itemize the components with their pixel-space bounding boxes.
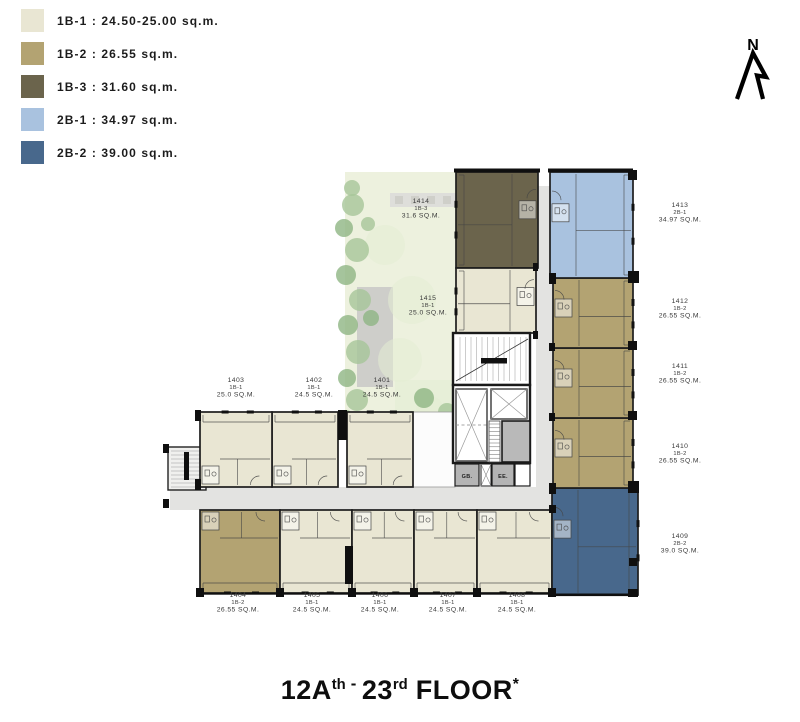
tree-icon [342,194,364,216]
unit-1414 [455,172,539,268]
tree-icon [346,340,370,364]
tree-icon [345,238,369,262]
legend-label: 1B-3 : 31.60 sq.m. [57,80,178,94]
stair-landing-bar [481,358,507,364]
unit-area: 24.5 SQ.M. [429,607,467,614]
unit-type: 1B-2 [673,306,686,312]
wall-tick [184,452,189,480]
wall-tick [628,411,637,420]
wall-tick [628,341,637,350]
legend-row-1b-1: 1B-1 : 24.50-25.00 sq.m. [21,4,219,37]
unit-label-1404: 14041B-226.55 SQ.M. [217,592,260,614]
legend-row-1b-2: 1B-2 : 26.55 sq.m. [21,37,219,70]
wall-tick [195,479,201,490]
wall-tick [533,331,538,339]
tree-icon [363,310,379,326]
unit-label-1405: 14051B-124.5 SQ.M. [293,592,331,614]
unit-number: 1401 [374,377,391,384]
unit-1409 [552,488,640,595]
floor-title-part1: 12A [281,675,332,705]
unit-label-1406: 14061B-124.5 SQ.M. [361,592,399,614]
unit-number: 1411 [672,363,688,370]
unit-label-1408: 14081B-124.5 SQ.M. [498,592,536,614]
unit-number: 1408 [509,592,526,599]
unit-number: 1407 [440,592,457,599]
legend-label: 2B-1 : 34.97 sq.m. [57,113,178,127]
unit-1403 [200,411,272,488]
ee-label: EE. [498,474,508,480]
unit-area: 24.5 SQ.M. [498,607,536,614]
building-core: GB. EE. [453,333,530,486]
unit-label-1403: 14031B-125.0 SQ.M. [217,377,255,399]
unit-label-1411: 14111B-226.55 SQ.M. [659,363,702,385]
unit-area: 25.0 SQ.M. [409,310,447,317]
legend-row-2b-1: 2B-1 : 34.97 sq.m. [21,103,219,136]
unit-number: 1415 [420,295,437,302]
wall-tick [338,410,347,440]
unit-type-legend: 1B-1 : 24.50-25.00 sq.m.1B-2 : 26.55 sq.… [21,4,219,169]
unit-area: 34.97 SQ.M. [659,217,702,224]
unit-area: 26.55 SQ.M. [659,313,702,320]
unit-area: 26.55 SQ.M. [659,458,702,465]
unit-type: 1B-1 [307,385,320,391]
tree-icon [335,219,353,237]
unit-area: 25.0 SQ.M. [217,392,255,399]
unit-number: 1413 [672,202,689,209]
unit-1410 [553,418,635,488]
floor-title: 12Ath-23rd FLOOR* [0,674,800,706]
tree-icon [344,180,360,196]
floor-title-star: * [513,676,520,693]
garden-canopy [365,225,405,265]
legend-swatch-1b-3 [21,75,44,98]
legend-label: 1B-1 : 24.50-25.00 sq.m. [57,14,219,28]
floor-title-sup1: th [332,677,346,693]
unit-type: 1B-1 [305,600,318,606]
unit-label-1413: 14132B-134.97 SQ.M. [659,202,702,224]
legend-label: 1B-2 : 26.55 sq.m. [57,47,178,61]
tree-icon [361,217,375,231]
tree-icon [349,289,371,311]
unit-type: 2B-1 [673,210,686,216]
riser-shaft [489,421,500,462]
wall-tick [628,271,639,283]
wall-tick [163,444,169,453]
unit-1407 [414,510,477,595]
planter [395,196,403,204]
unit-1404 [200,510,280,595]
unit-type: 1B-2 [673,451,686,457]
unit-1408 [477,510,552,595]
unit-1401 [347,411,413,488]
unit-number: 1409 [672,533,689,540]
unit-1405 [280,510,352,595]
tree-icon [414,388,434,408]
unit-area: 24.5 SQ.M. [293,607,331,614]
floor-title-part3: FLOOR [408,675,513,705]
unit-number: 1405 [304,592,321,599]
floor-title-dash: - [351,674,357,693]
legend-label: 2B-2 : 39.00 sq.m. [57,146,178,160]
unit-number: 1406 [372,592,389,599]
unit-number: 1410 [672,443,689,450]
unit-1402 [272,411,338,488]
unit-area: 26.55 SQ.M. [659,378,702,385]
unit-1411 [553,348,635,418]
unit-type: 1B-1 [441,600,454,606]
unit-label-1407: 14071B-124.5 SQ.M. [429,592,467,614]
unit-type: 1B-1 [510,600,523,606]
floor-title-sup2: rd [393,677,408,693]
open-void [413,412,455,487]
wall-tick [628,481,639,493]
unit-type: 1B-1 [373,600,386,606]
unit-label-1409: 14092B-239.0 SQ.M. [661,533,699,555]
wall-tick [454,169,540,173]
unit-area: 39.0 SQ.M. [661,548,699,555]
legend-row-2b-2: 2B-2 : 39.00 sq.m. [21,136,219,169]
unit-1415 [455,268,537,333]
wall-tick [163,499,169,508]
tree-icon [338,369,356,387]
wall-tick [533,263,538,271]
unit-area: 26.55 SQ.M. [217,607,260,614]
unit-area: 24.5 SQ.M. [363,392,401,399]
unit-area: 24.5 SQ.M. [361,607,399,614]
corridor-horizontal [170,487,553,510]
legend-swatch-2b-2 [21,141,44,164]
tree-icon [338,315,358,335]
unit-type: 1B-2 [673,371,686,377]
wall-tick [345,546,353,584]
unit-1413-outline [550,172,633,278]
unit-area: 24.5 SQ.M. [295,392,333,399]
unit-1409-outline [552,488,638,595]
unit-number: 1404 [230,592,247,599]
tree-icon [336,265,356,285]
legend-swatch-1b-1 [21,9,44,32]
unit-label-1402: 14021B-124.5 SQ.M. [295,377,333,399]
garden-canopy [378,338,422,382]
unit-number: 1402 [306,377,323,384]
unit-number: 1403 [228,377,245,384]
legend-swatch-1b-2 [21,42,44,65]
unit-1412 [553,278,635,348]
wall-tick [549,413,555,421]
planter [443,196,451,204]
legend-row-1b-3: 1B-3 : 31.60 sq.m. [21,70,219,103]
wall-tick [195,410,201,421]
unit-type: 1B-2 [231,600,244,606]
service-room [502,421,530,462]
north-arrow-glyph [737,53,766,99]
floorplan-page: 1B-1 : 24.50-25.00 sq.m.1B-2 : 26.55 sq.… [0,0,800,722]
gb-label: GB. [462,474,473,480]
unit-number: 1412 [672,298,689,305]
north-arrow: N [737,37,766,99]
unit-area: 31.6 SQ.M. [402,213,440,220]
legend-swatch-2b-1 [21,108,44,131]
unit-type: 2B-2 [673,541,686,547]
unit-type: 1B-3 [414,206,427,212]
unit-1406 [352,510,414,595]
wall-tick [549,343,555,351]
unit-1413 [550,172,635,278]
unit-1414-outline [456,172,538,268]
wall-tick [549,273,556,284]
wall-tick [549,505,556,513]
unit-type: 1B-1 [229,385,242,391]
unit-type: 1B-1 [421,303,434,309]
unit-type: 1B-1 [375,385,388,391]
wall-tick [628,170,637,180]
floor-title-part2: 23 [362,675,393,705]
wall-tick [549,483,556,494]
wall-tick [552,594,638,597]
core-closet [515,464,530,486]
unit-number: 1414 [413,198,430,205]
unit-label-1410: 14101B-226.55 SQ.M. [659,443,702,465]
wall-tick [629,558,637,566]
unit-label-1412: 14121B-226.55 SQ.M. [659,298,702,320]
wall-tick [548,169,633,173]
